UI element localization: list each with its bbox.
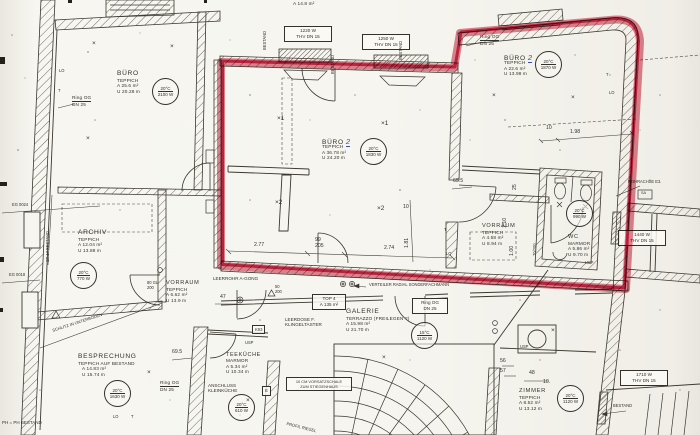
scanned-floorplan: BÜRO TEPPICH A 25.6 m² U 20.28 m 20°C210…	[0, 0, 700, 435]
red-marked-area-outline	[0, 0, 700, 435]
